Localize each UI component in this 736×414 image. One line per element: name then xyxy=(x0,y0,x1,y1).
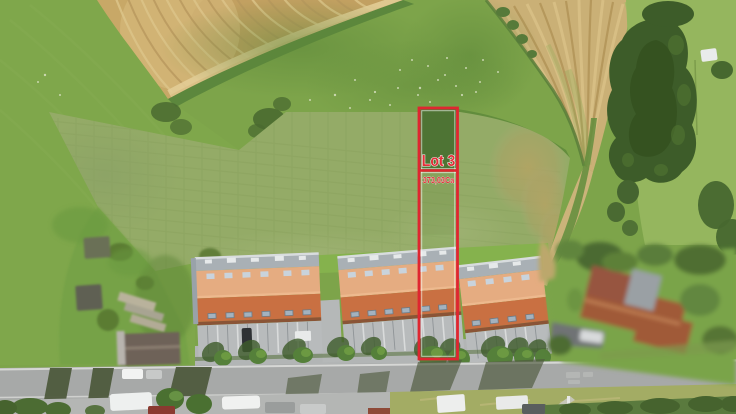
svg-text:373,03Ca: 373,03Ca xyxy=(423,176,455,185)
svg-text:Lot 3: Lot 3 xyxy=(422,153,456,170)
